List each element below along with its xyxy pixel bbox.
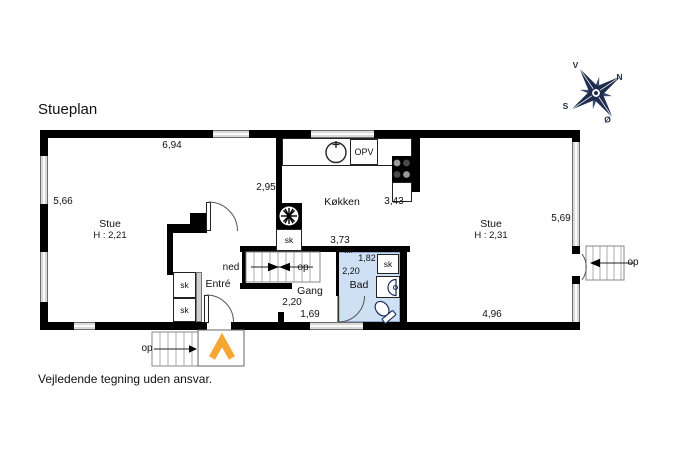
entrance-landing xyxy=(198,330,244,366)
wall-bottom-b xyxy=(95,322,207,330)
compass-north-label: N xyxy=(616,72,622,82)
dim-gang-top: 3,73 xyxy=(322,235,358,246)
up-arrow-entrance-icon xyxy=(189,345,197,353)
door-arc-right xyxy=(582,254,586,280)
stairs-down-arrow-icon xyxy=(268,263,279,271)
dim-stue-right-side: 5,69 xyxy=(543,213,579,224)
dim-bad-depth: 2,20 xyxy=(337,266,365,276)
door-arc-entrance xyxy=(207,295,234,322)
wall-kitchen-stue xyxy=(412,138,420,192)
disclaimer-text: Vejledende tegning uden ansvar. xyxy=(38,373,212,386)
door-leaf-stue-entre xyxy=(206,202,211,231)
wall-bath-right xyxy=(400,252,407,322)
dim-bad-width: 1,82 xyxy=(353,253,381,263)
entrance-stairs-up-label: op xyxy=(136,343,158,354)
wall-entre-top xyxy=(167,224,207,233)
floor-plan-page: Stueplan OPV sk sk sk sk xyxy=(0,0,687,457)
dim-stue-left-opening: 2,95 xyxy=(248,182,284,193)
wall-bottom-d xyxy=(363,322,580,330)
closet-center: sk xyxy=(276,229,302,251)
window-right-lower xyxy=(572,284,580,322)
room-name: Stue xyxy=(456,219,526,231)
dim-stue-right-bottom: 4,96 xyxy=(474,309,510,320)
window-bottom-bath xyxy=(310,322,363,330)
compass-east-label: Ø xyxy=(604,115,611,125)
compass-west-label: V xyxy=(573,60,579,70)
wall-top-b xyxy=(249,130,311,138)
stairs-up-label: op xyxy=(292,262,314,273)
window-left-upper xyxy=(40,156,48,204)
window-left-lower xyxy=(40,252,48,302)
entrance-chevron-icon xyxy=(212,340,232,358)
window-top-left xyxy=(213,130,249,138)
room-label-bad: Bad xyxy=(342,280,376,292)
window-bottom-left xyxy=(74,322,95,330)
compass-rose: V N S Ø xyxy=(554,51,637,134)
dim-gang-width: 2,20 xyxy=(274,297,310,308)
wall-hall-top xyxy=(240,246,410,252)
wall-top-c xyxy=(374,130,580,138)
stairs-up-arrow-icon xyxy=(279,263,290,271)
wall-stair-bottom xyxy=(240,283,292,289)
room-label-gang: Gang xyxy=(288,286,332,298)
dim-gang-opening: 1,69 xyxy=(292,309,328,320)
dim-kitchen-side: 3,43 xyxy=(377,196,411,207)
room-label-entre: Entré xyxy=(195,279,241,291)
bath-sink-box xyxy=(376,276,400,298)
door-leaf-entrance xyxy=(204,295,209,323)
dim-stue-left-top: 6,94 xyxy=(154,140,190,151)
stairs-down-label: ned xyxy=(218,262,244,273)
dim-stue-left-side: 5,66 xyxy=(48,196,78,207)
room-label-kitchen: Køkken xyxy=(312,197,372,209)
wall-entre-pier xyxy=(190,213,207,224)
dishwasher-box: OPV xyxy=(350,139,378,165)
room-label-stue-right: Stue H : 2,31 xyxy=(456,219,526,241)
ceiling-height: H : 2,31 xyxy=(456,231,526,242)
page-title: Stueplan xyxy=(38,102,97,119)
fan-closet-box xyxy=(276,203,302,229)
window-top-kitchen xyxy=(311,130,374,138)
stove-icon xyxy=(392,156,412,182)
window-right-upper xyxy=(572,142,580,246)
closet-entre-2: sk xyxy=(173,298,196,322)
closet-entre-1: sk xyxy=(173,272,196,298)
wall-left-c xyxy=(40,302,48,330)
door-arc-stue-entre xyxy=(209,202,238,231)
wall-entre-left xyxy=(167,230,173,275)
up-arrow-right-icon xyxy=(590,259,600,267)
compass-south-label: S xyxy=(563,101,569,111)
right-stairs-up-label: op xyxy=(622,257,644,268)
wall-bottom-c xyxy=(231,322,310,330)
room-label-stue-left: Stue H : 2,21 xyxy=(75,219,145,241)
wall-left-b xyxy=(40,204,48,252)
wall-left-a xyxy=(40,130,48,156)
ceiling-height: H : 2,21 xyxy=(75,231,145,242)
wall-right-c xyxy=(572,276,580,284)
wall-right-b xyxy=(572,246,580,254)
room-name: Stue xyxy=(75,219,145,231)
wall-right-a xyxy=(572,130,580,142)
wall-gang-stub xyxy=(278,312,284,322)
entrance-stairs xyxy=(152,330,244,366)
wall-top-a xyxy=(40,130,213,138)
